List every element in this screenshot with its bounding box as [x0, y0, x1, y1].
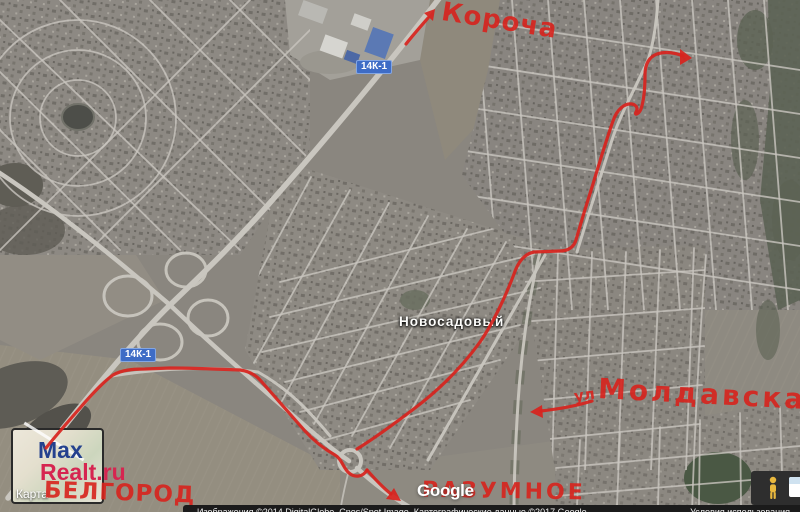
satellite-imagery — [0, 0, 800, 512]
settlement-label: Новосадовый — [399, 314, 504, 329]
annotation-street-prefix: ул — [573, 385, 596, 406]
satellite-map[interactable]: Новосадовый 14К-1 14К-1 Max Realt.ru Кар… — [0, 0, 800, 512]
map-type-thumbnail[interactable] — [789, 477, 800, 497]
pegman-icon[interactable] — [765, 476, 781, 500]
attribution-bar: Изображения ©2014 DigitalGlobe, Cnes/Spo… — [183, 505, 800, 512]
road-badge: 14К-1 — [356, 60, 392, 74]
terrain-layer — [0, 0, 800, 512]
map-type-thumbnail-sky — [789, 477, 800, 484]
road-badge: 14К-1 — [120, 348, 156, 362]
pegman-control[interactable] — [751, 471, 800, 505]
annotation-belgorod: БЕЛГОРОД — [44, 477, 196, 508]
attribution-text: Изображения ©2014 DigitalGlobe, Cnes/Spo… — [197, 507, 587, 512]
terms-link[interactable]: Условия использования — [690, 507, 790, 512]
google-watermark[interactable]: Google — [417, 481, 474, 501]
